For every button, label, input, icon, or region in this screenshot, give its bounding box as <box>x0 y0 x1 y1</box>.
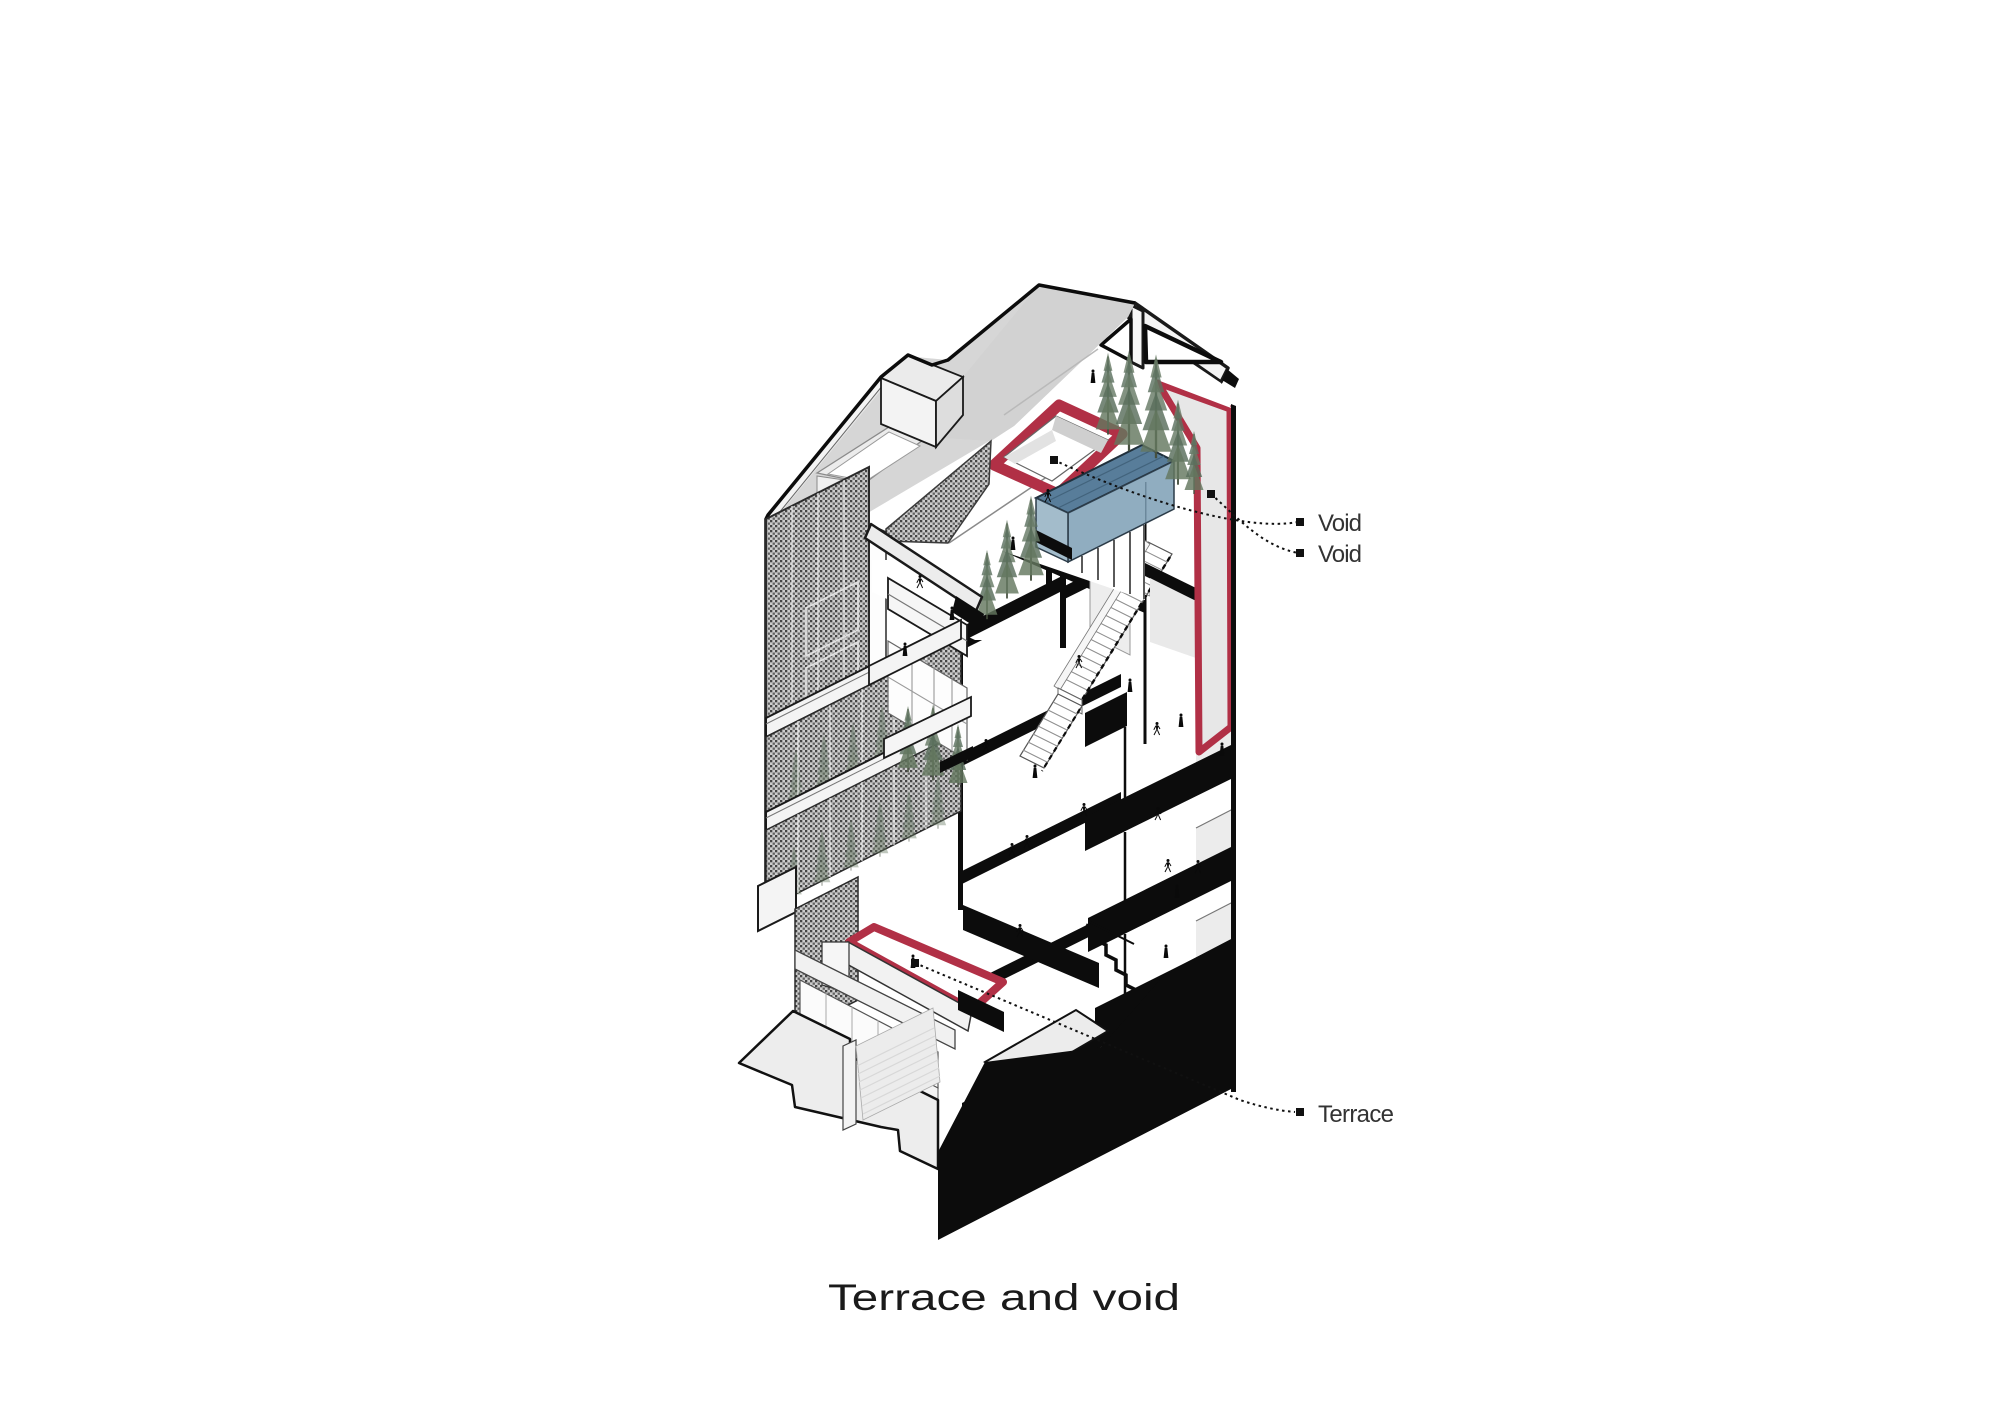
svg-text:Void: Void <box>1318 510 1362 537</box>
svg-text:Terrace and void: Terrace and void <box>828 1277 1180 1318</box>
svg-text:Terrace: Terrace <box>1318 1101 1394 1128</box>
svg-text:Void: Void <box>1318 541 1362 568</box>
